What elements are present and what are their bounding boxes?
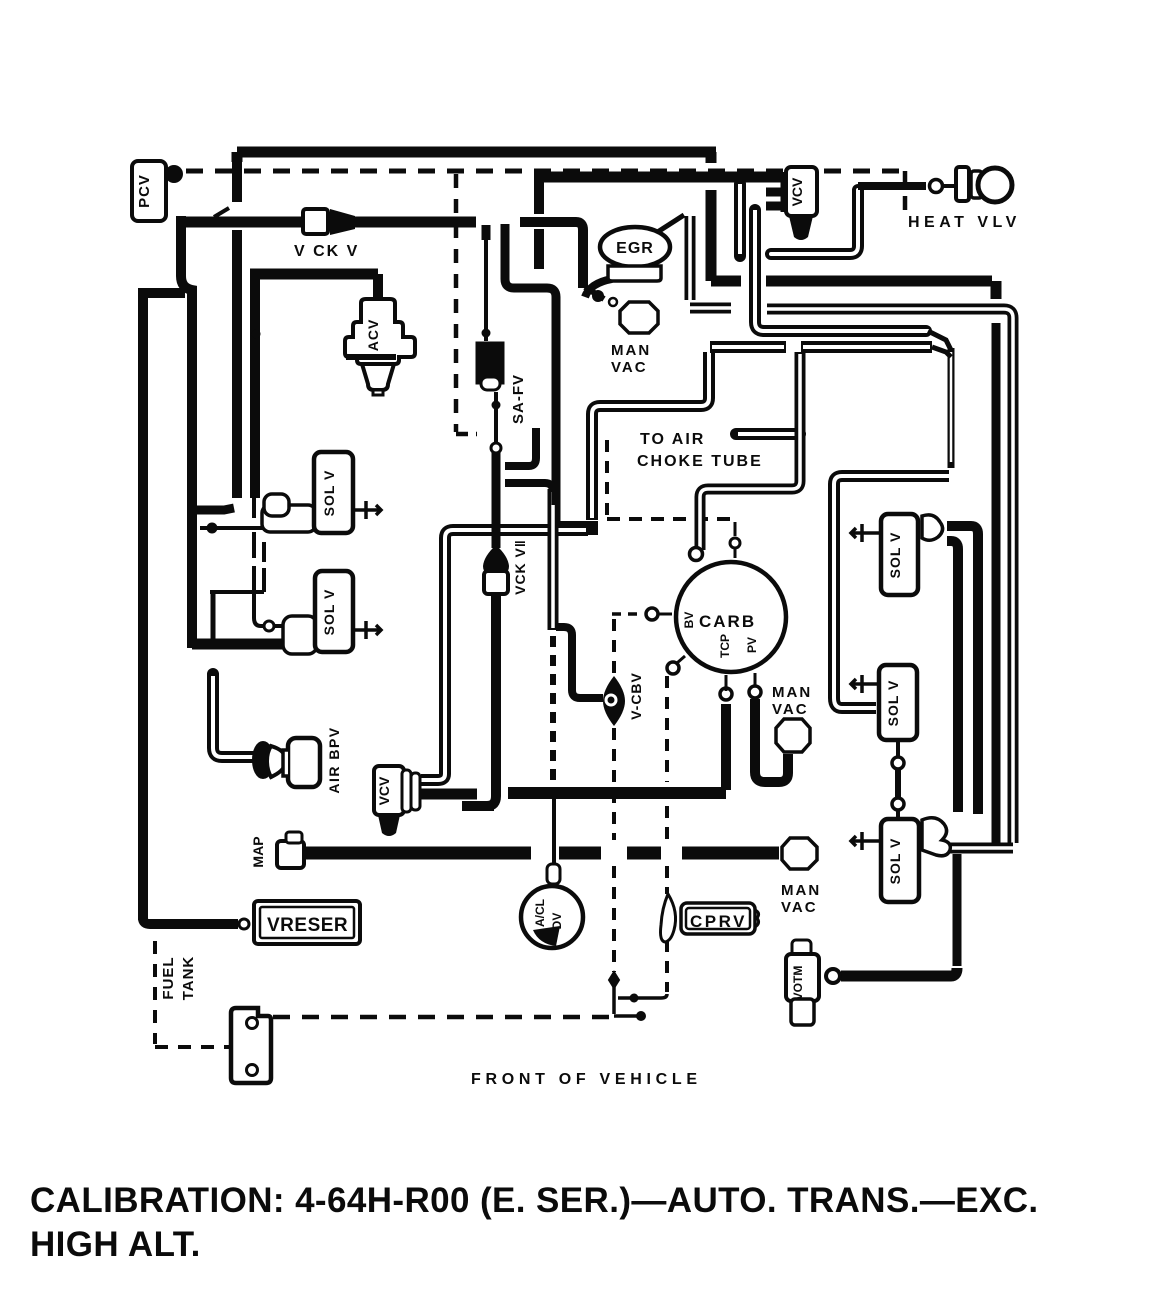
svg-text:SOL V: SOL V: [887, 838, 903, 885]
svg-text:TO AIR: TO AIR: [640, 431, 705, 448]
svg-text:CARB: CARB: [699, 612, 756, 631]
svg-text:V-CBV: V-CBV: [628, 672, 644, 720]
svg-text:PV: PV: [745, 637, 759, 653]
svg-text:CPRV: CPRV: [690, 912, 747, 931]
svg-text:HEAT VLV: HEAT VLV: [908, 214, 1021, 231]
svg-text:VRESER: VRESER: [267, 915, 348, 936]
svg-text:VCV: VCV: [789, 177, 805, 206]
svg-text:VAC: VAC: [781, 899, 818, 916]
svg-text:VCK V‖: VCK V‖: [512, 539, 528, 595]
svg-text:ACV: ACV: [365, 319, 381, 352]
svg-text:FUEL: FUEL: [160, 956, 177, 999]
svg-text:PCV: PCV: [136, 174, 153, 208]
svg-text:CHOKE TUBE: CHOKE TUBE: [637, 453, 763, 470]
svg-text:HIGH ALT.: HIGH ALT.: [30, 1225, 201, 1264]
svg-text:VCV: VCV: [376, 776, 392, 805]
svg-text:VAC: VAC: [772, 701, 809, 718]
svg-text:SA-FV: SA-FV: [510, 374, 527, 424]
svg-text:CALIBRATION: 4-64H-R00 (E. SER: CALIBRATION: 4-64H-R00 (E. SER.)—AUTO. T…: [30, 1181, 1039, 1220]
svg-text:SOL V: SOL V: [887, 532, 903, 579]
svg-text:VAC: VAC: [611, 359, 648, 376]
svg-text:DV: DV: [550, 913, 564, 930]
svg-text:SOL V: SOL V: [321, 470, 337, 517]
svg-text:V CK V: V CK V: [294, 243, 359, 260]
svg-text:FRONT OF VEHICLE: FRONT OF VEHICLE: [471, 1071, 702, 1088]
svg-text:MAN: MAN: [781, 882, 821, 899]
svg-text:TANK: TANK: [180, 956, 197, 1001]
svg-text:VOTM: VOTM: [791, 966, 805, 1001]
svg-text:TCP: TCP: [718, 634, 732, 658]
svg-text:EGR: EGR: [616, 240, 654, 257]
svg-text:MAN: MAN: [611, 342, 651, 359]
svg-text:MAN: MAN: [772, 684, 812, 701]
svg-text:AIR BPV: AIR BPV: [326, 726, 342, 793]
svg-text:MAP: MAP: [250, 836, 266, 867]
svg-text:A/CL: A/CL: [533, 899, 547, 927]
svg-text:BV: BV: [682, 612, 696, 629]
svg-text:SOL V: SOL V: [321, 589, 337, 636]
svg-text:SOL V: SOL V: [885, 680, 901, 727]
